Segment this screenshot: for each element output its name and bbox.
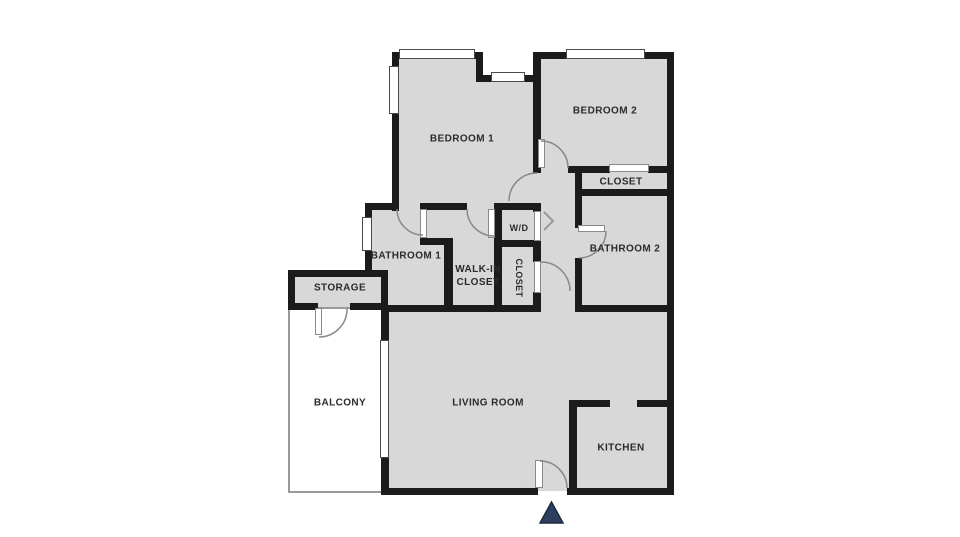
entrance-arrow-icon: [540, 502, 563, 523]
kitchen-label: KITCHEN: [597, 443, 644, 454]
bathroom2-label: BATHROOM 2: [590, 244, 660, 255]
door-arc: [541, 141, 568, 168]
door-arc: [467, 209, 494, 236]
bifold-door-chevron-icon: [544, 212, 553, 230]
walkin-closet-label-line1: WALK-IN: [455, 264, 501, 275]
walkin-closet-label-line2: CLOSET: [457, 277, 500, 288]
walkin-closet-label: WALK-IN CLOSET: [443, 263, 513, 289]
living-room-label: LIVING ROOM: [452, 398, 524, 409]
wd-label: W/D: [510, 223, 529, 233]
closet-upper-label: CLOSET: [600, 177, 643, 188]
bedroom2-label: BEDROOM 2: [573, 106, 637, 117]
storage-label: STORAGE: [314, 283, 366, 294]
door-arc: [509, 173, 537, 201]
closet-hall-label: CLOSET: [514, 259, 524, 298]
floor-plan: BEDROOM 1 BEDROOM 2 CLOSET BATHROOM 2 W/…: [0, 0, 960, 537]
door-arc: [397, 209, 423, 235]
door-arc: [319, 309, 347, 337]
bathroom1-label: BATHROOM 1: [371, 251, 441, 262]
balcony-label: BALCONY: [314, 398, 366, 409]
door-arc: [541, 262, 570, 291]
bedroom1-label: BEDROOM 1: [430, 134, 494, 145]
door-arc: [540, 461, 567, 488]
